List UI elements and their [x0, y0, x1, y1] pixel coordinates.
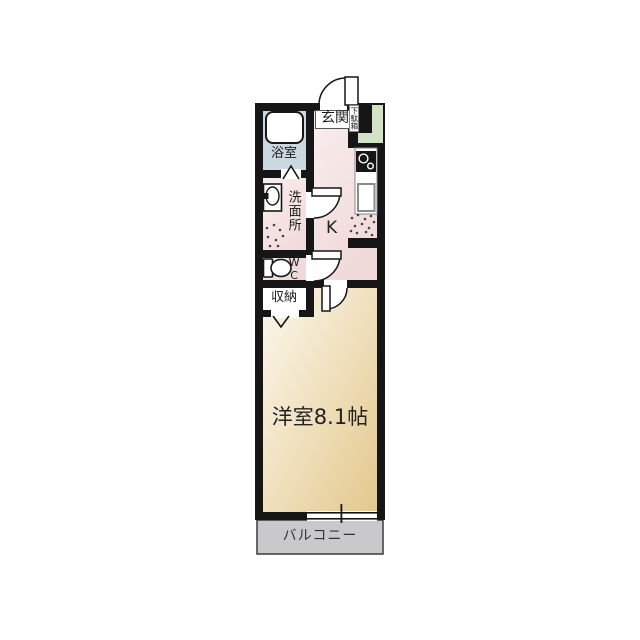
wall-washroom-wc [255, 250, 314, 258]
wc-label: WC [288, 256, 300, 282]
washroom-door-leaf [312, 188, 341, 196]
entrance-door-leaf [345, 77, 358, 105]
entrance-door-arc [319, 78, 346, 105]
window-center-tick [341, 504, 343, 523]
kitchen-label: K [326, 220, 337, 238]
wc-door-leaf [312, 251, 341, 259]
washbasin-icon [264, 184, 282, 211]
closet-door-opening [271, 309, 299, 318]
main-room-floor [263, 288, 377, 512]
wall-kitchen-stub [348, 238, 385, 248]
storage-label: 収納 [261, 291, 307, 305]
wall-right [377, 103, 385, 520]
wall-wc-closet [255, 280, 314, 288]
washbasin-tap [264, 193, 269, 199]
washroom-label: 洗面所 [286, 190, 300, 232]
kitchen-counter [355, 148, 377, 214]
bathroom-label: 浴室 [262, 147, 306, 161]
shoe-cabinet-label: 下駄箱 [349, 105, 359, 132]
floorplan-drawing [0, 0, 640, 640]
balcony-label: バルコニー [258, 529, 382, 544]
floorplan-canvas: 玄関 下駄箱 浴室 洗面所 WC 収納 K 洋室8.1帖 バルコニー [0, 0, 640, 640]
kitchen-sink-icon [358, 184, 375, 211]
main-room-label: 洋室8.1帖 [261, 406, 379, 428]
bathtub-icon [266, 112, 303, 143]
toilet-icon [264, 259, 292, 277]
main-room-door-leaf [322, 286, 330, 311]
